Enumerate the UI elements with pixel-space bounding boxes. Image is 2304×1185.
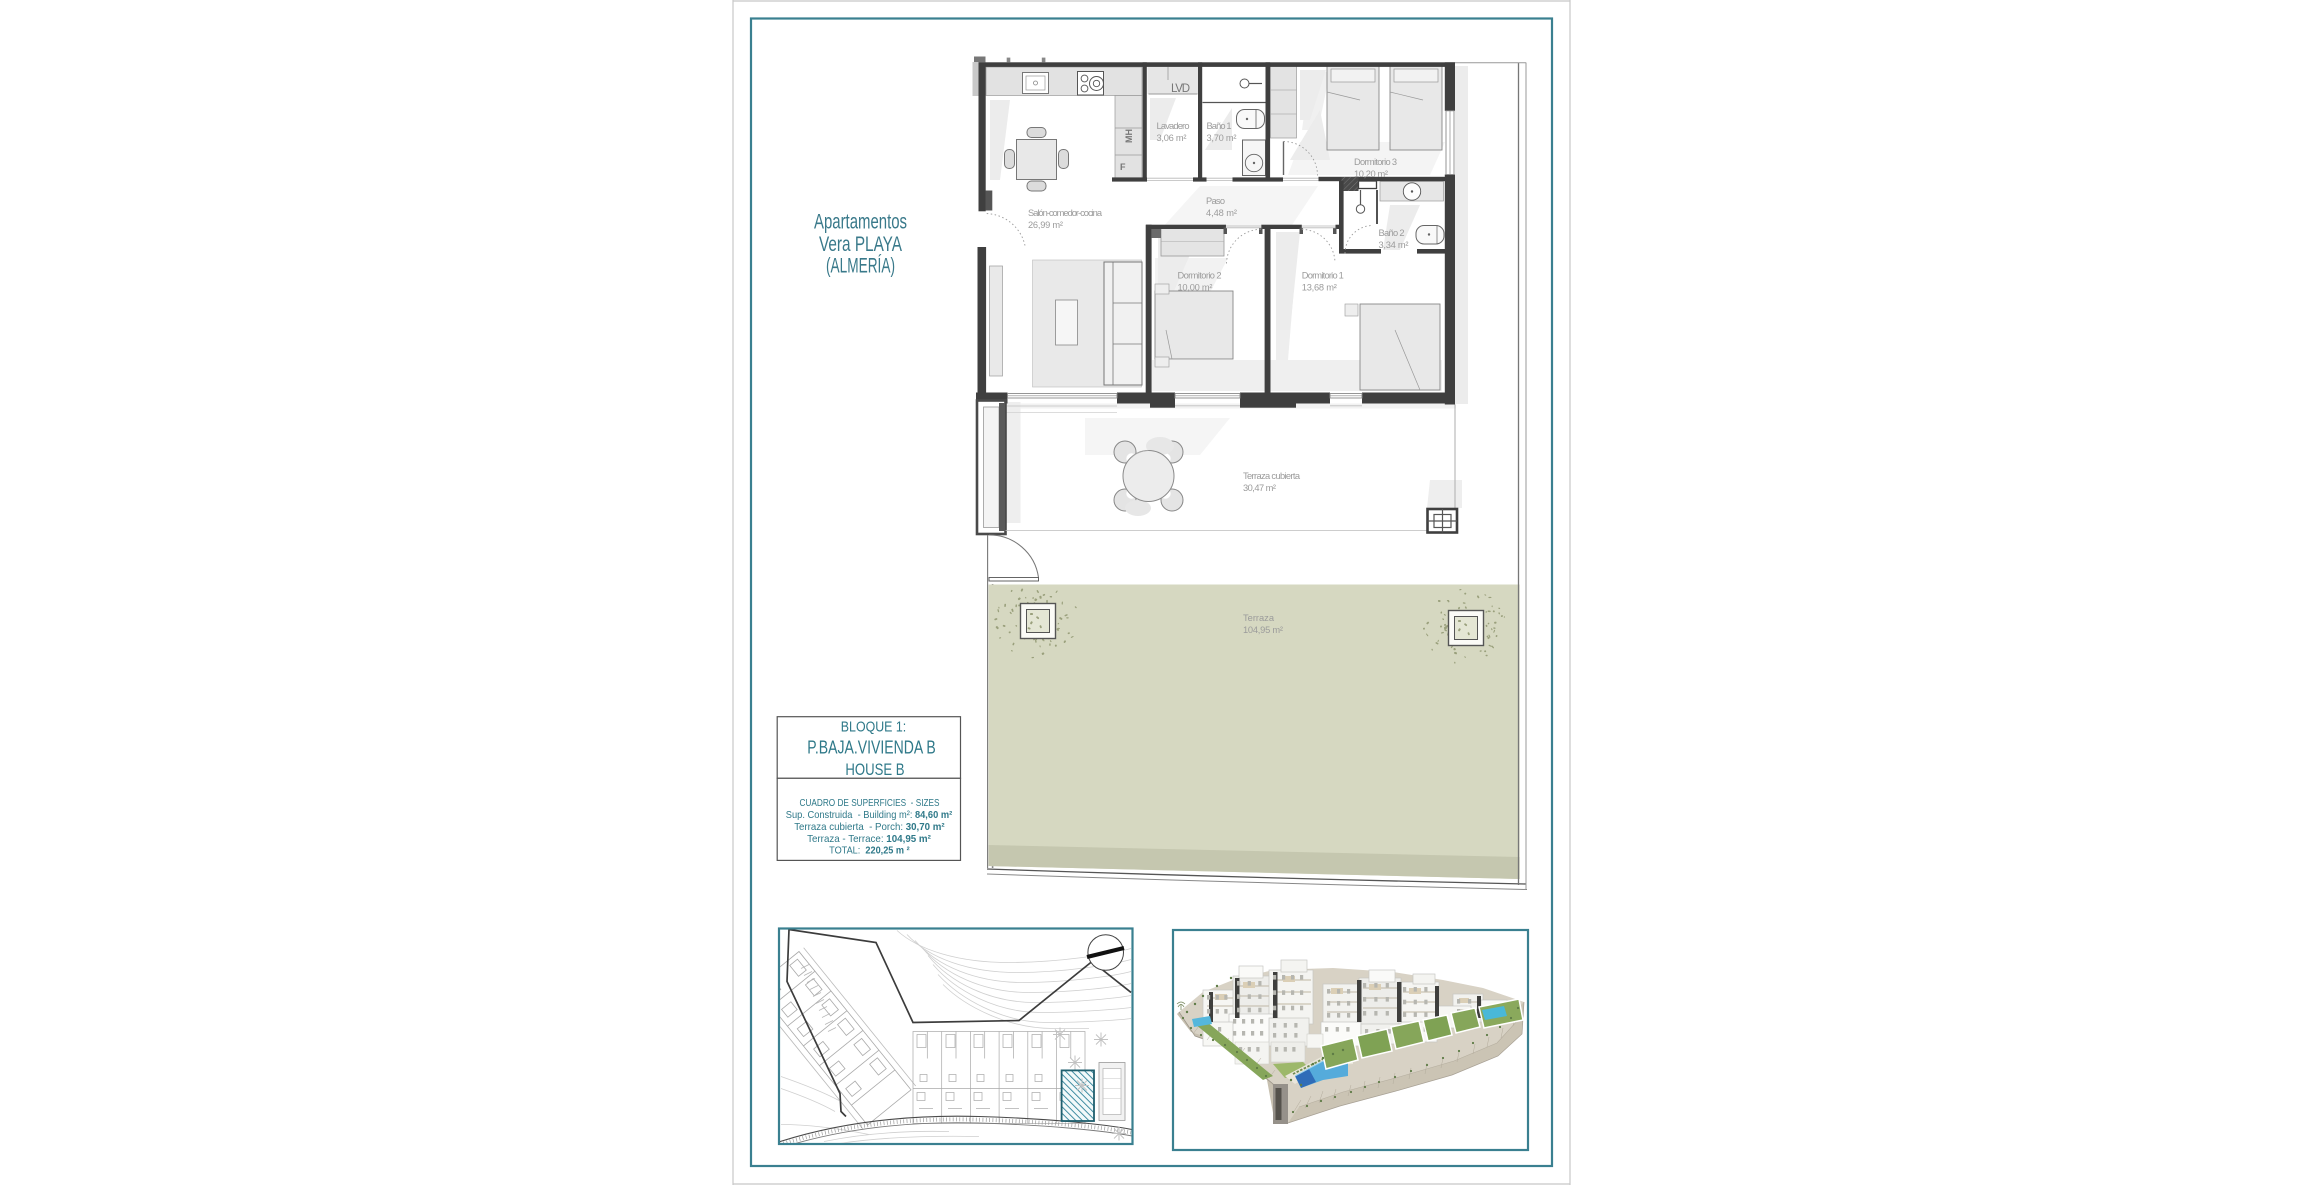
svg-text:MH: MH	[1124, 129, 1134, 143]
svg-text:Sup. Construida - Building m²: Sup. Construida - Building m²: 84,60 m²	[786, 810, 953, 821]
svg-text:BLOQUE 1:: BLOQUE 1:	[841, 719, 906, 736]
svg-text:Baño 2: Baño 2	[1379, 228, 1405, 238]
svg-text:Terraza cubierta - Porch: 30,: Terraza cubierta - Porch: 30,70 m²	[794, 822, 945, 833]
svg-text:F: F	[1120, 162, 1126, 172]
svg-text:Terraza - Terrace: 104,95 m²: Terraza - Terrace: 104,95 m²	[807, 834, 931, 845]
svg-text:Baño 1: Baño 1	[1207, 121, 1232, 131]
svg-text:Vera PLAYA: Vera PLAYA	[819, 233, 902, 256]
svg-text:26,99 m²: 26,99 m²	[1028, 220, 1063, 230]
svg-text:3,06 m²: 3,06 m²	[1157, 133, 1187, 143]
svg-text:Lavadero: Lavadero	[1157, 121, 1190, 131]
svg-text:Apartamentos: Apartamentos	[814, 211, 907, 234]
svg-text:(ALMERÍA): (ALMERÍA)	[826, 255, 895, 278]
svg-text:LVD: LVD	[1171, 83, 1190, 95]
svg-text:CUADRO DE SUPERFICIES - SIZES: CUADRO DE SUPERFICIES - SIZES	[800, 798, 940, 809]
svg-text:4,48 m²: 4,48 m²	[1206, 208, 1237, 218]
svg-text:Paso: Paso	[1206, 196, 1225, 206]
svg-text:HOUSE B: HOUSE B	[845, 760, 904, 779]
svg-text:10,00 m²: 10,00 m²	[1178, 283, 1213, 293]
svg-text:P.BAJA.VIVIENDA B: P.BAJA.VIVIENDA B	[807, 737, 935, 758]
svg-text:104,95 m²: 104,95 m²	[1243, 625, 1283, 635]
svg-text:Terraza cubierta: Terraza cubierta	[1243, 471, 1301, 481]
svg-text:30,47 m²: 30,47 m²	[1243, 483, 1276, 493]
svg-text:Dormitorio 3: Dormitorio 3	[1354, 157, 1397, 167]
svg-text:Dormitorio 2: Dormitorio 2	[1178, 271, 1222, 281]
svg-text:Terraza: Terraza	[1243, 613, 1275, 623]
svg-text:10,20 m²: 10,20 m²	[1354, 169, 1388, 179]
svg-text:3,70 m²: 3,70 m²	[1207, 133, 1237, 143]
svg-text:Salón-comedor-cocina: Salón-comedor-cocina	[1028, 208, 1103, 218]
svg-text:3,34 m²: 3,34 m²	[1379, 240, 1409, 250]
svg-text:13,68 m²: 13,68 m²	[1302, 283, 1337, 293]
svg-text:Dormitorio 1: Dormitorio 1	[1302, 271, 1344, 281]
svg-text:TOTAL: 220,25 m ²: TOTAL: 220,25 m ²	[829, 845, 910, 856]
